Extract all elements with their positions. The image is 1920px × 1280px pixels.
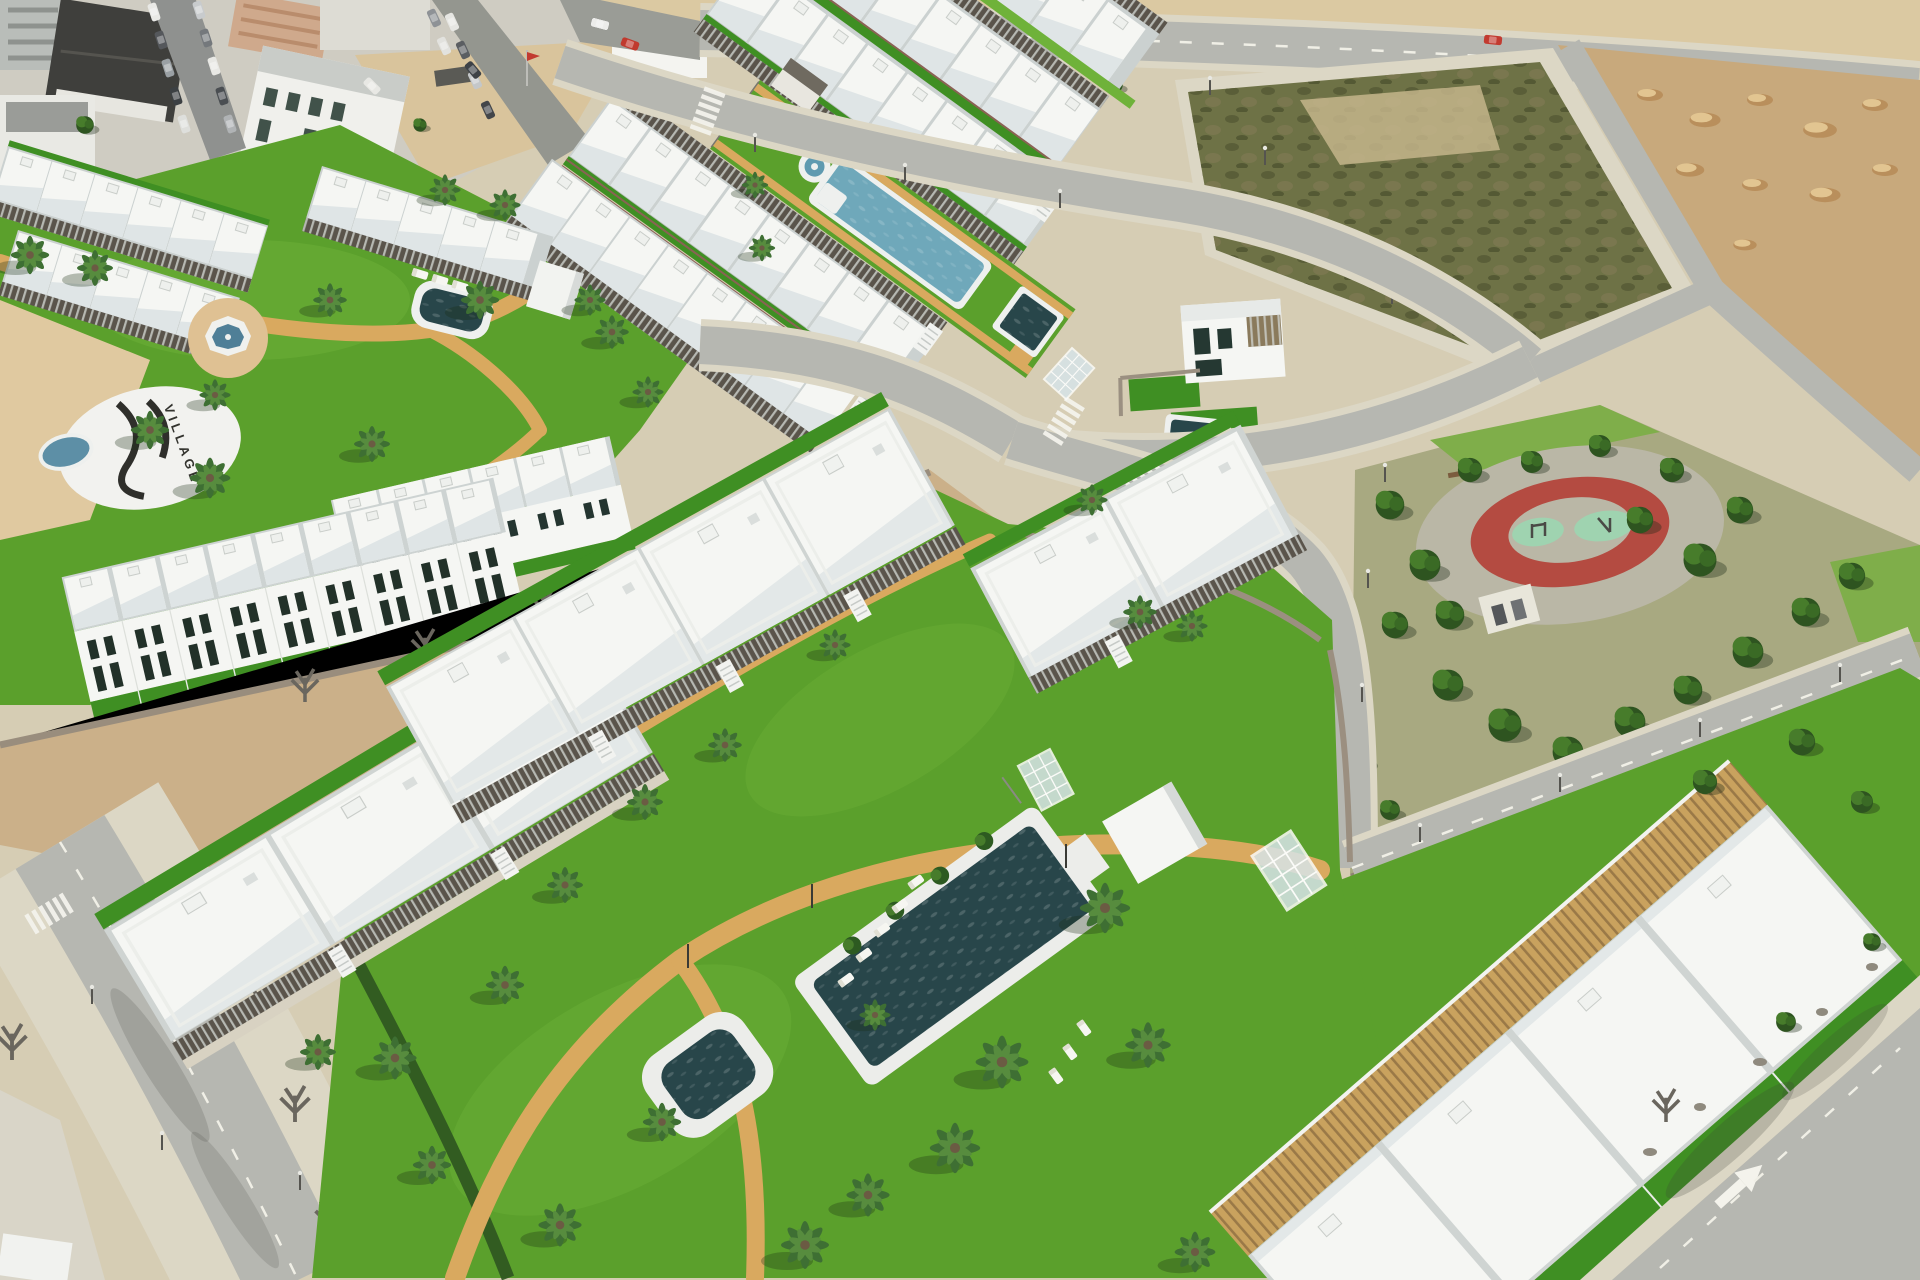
octagon-fountain (188, 298, 268, 378)
red-car (1484, 35, 1503, 46)
villa-pergola-rafters (1246, 315, 1282, 347)
aerial-render-image: VILLAGE (0, 0, 1920, 1280)
town-building (320, 0, 430, 50)
scene-svg: VILLAGE (0, 0, 1920, 1280)
town-roof (6, 102, 88, 132)
